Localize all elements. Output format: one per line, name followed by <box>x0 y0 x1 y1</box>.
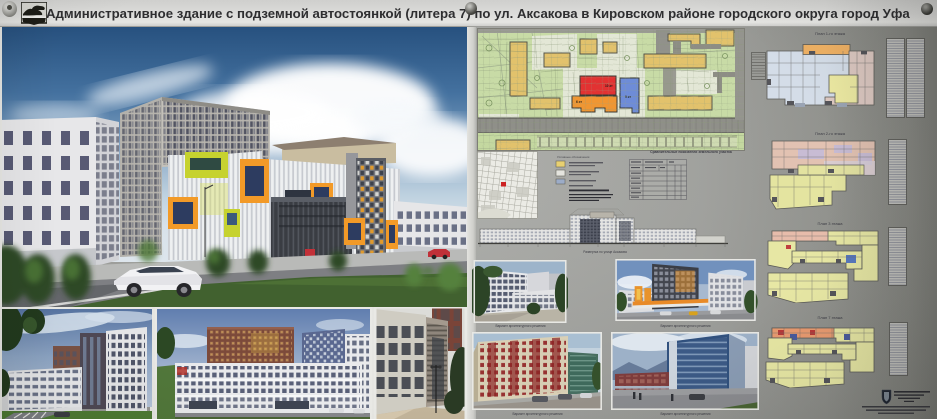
svg-text:Условные обозначения: Условные обозначения <box>557 155 590 159</box>
